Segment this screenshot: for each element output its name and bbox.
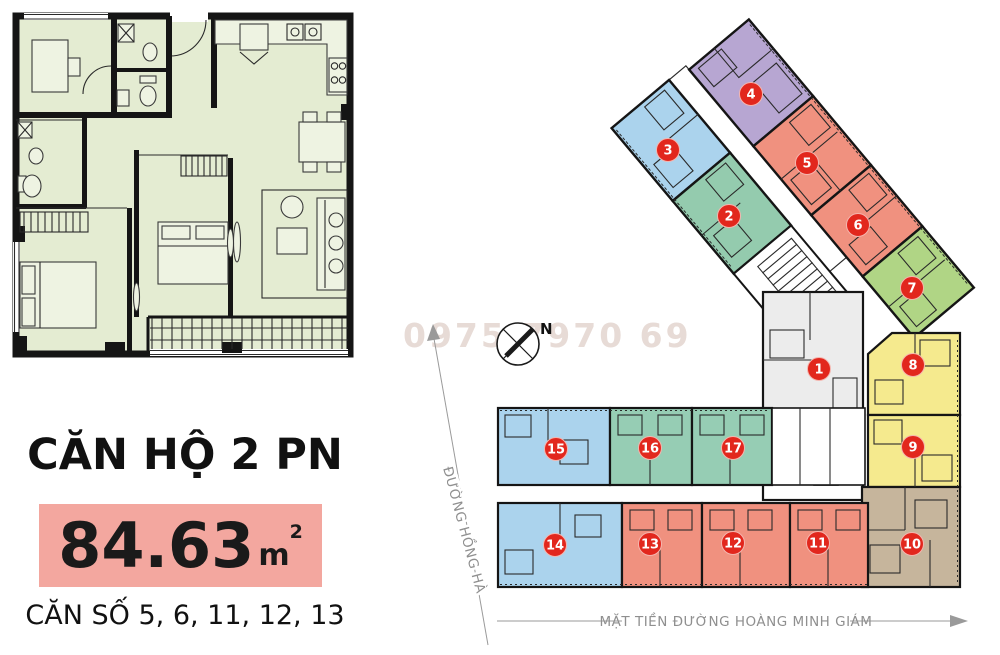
unit-marker-number-5: 5: [802, 157, 811, 172]
unit-marker-number-2: 2: [724, 210, 733, 225]
unit-marker-number-14: 14: [546, 539, 564, 554]
floorplan-sheet: { "left_panel": { "title": "CĂN HỘ 2 PN"…: [0, 0, 1000, 655]
unit-marker-number-9: 9: [908, 441, 917, 456]
unit-marker-number-13: 13: [641, 538, 659, 553]
street-left-label: ĐƯỜNG HỒNG HÀ: [439, 464, 491, 595]
unit-marker-number-10: 10: [903, 538, 921, 553]
street-arrow-icon: [950, 615, 968, 627]
unit-marker-number-12: 12: [724, 537, 742, 552]
utility-section: [772, 408, 865, 485]
unit-marker-number-1: 1: [814, 363, 823, 378]
unit-marker-number-15: 15: [547, 443, 565, 458]
street-left: ĐƯỜNG HỒNG HÀ: [427, 324, 491, 645]
unit-marker-number-6: 6: [853, 219, 862, 234]
unit-marker-number-4: 4: [746, 88, 755, 103]
street-bottom: MẶT TIỀN ĐƯỜNG HOÀNG MINH GIÁM: [497, 611, 968, 630]
unit-marker-number-7: 7: [907, 282, 916, 297]
unit-marker-number-8: 8: [908, 359, 917, 374]
site-unit-12: [702, 503, 790, 587]
street-bottom-label: MẶT TIỀN ĐƯỜNG HOÀNG MINH GIÁM: [600, 611, 873, 630]
compass-n-label: N: [540, 320, 553, 338]
site-key-plan: 0975 7970 69: [0, 0, 1000, 655]
site-unit-13: [622, 503, 702, 587]
unit-marker-number-3: 3: [663, 144, 672, 159]
site-unit-1: [763, 292, 863, 415]
unit-marker-number-11: 11: [809, 537, 827, 552]
unit-marker-number-16: 16: [641, 442, 659, 457]
unit-marker-number-17: 17: [724, 442, 742, 457]
